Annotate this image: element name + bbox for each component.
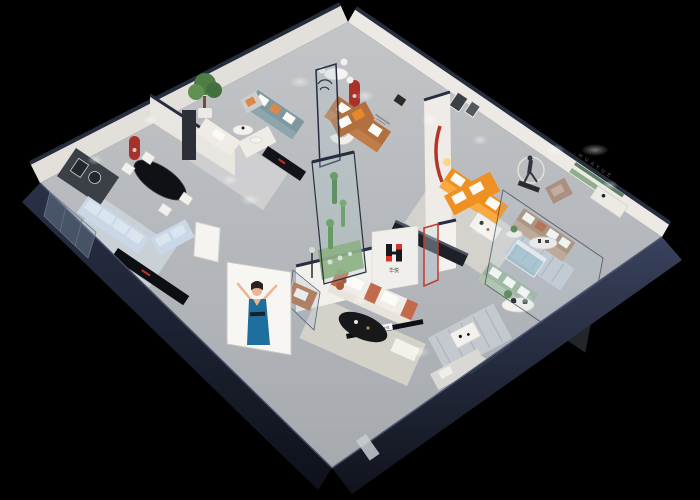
bear-figurine [336,282,344,290]
woman-blue-dress [247,299,270,345]
warm-lamp-glow [443,158,451,166]
brand-name-cn: 华悦 [389,267,399,274]
niche-figurine [133,148,137,152]
tall-glass-partition [316,64,340,167]
showroom-render: HUAYUE 华 [0,0,700,500]
red-frame-glass [424,224,438,286]
dress-belt [250,312,265,317]
dark-door-panel [182,110,196,160]
billboard [227,262,291,355]
brand-wall-center: 华悦 [372,224,438,292]
showroom-svg: HUAYUE 华 [0,0,700,500]
white-display-board [194,222,220,262]
niche-figurine-2 [353,94,357,98]
